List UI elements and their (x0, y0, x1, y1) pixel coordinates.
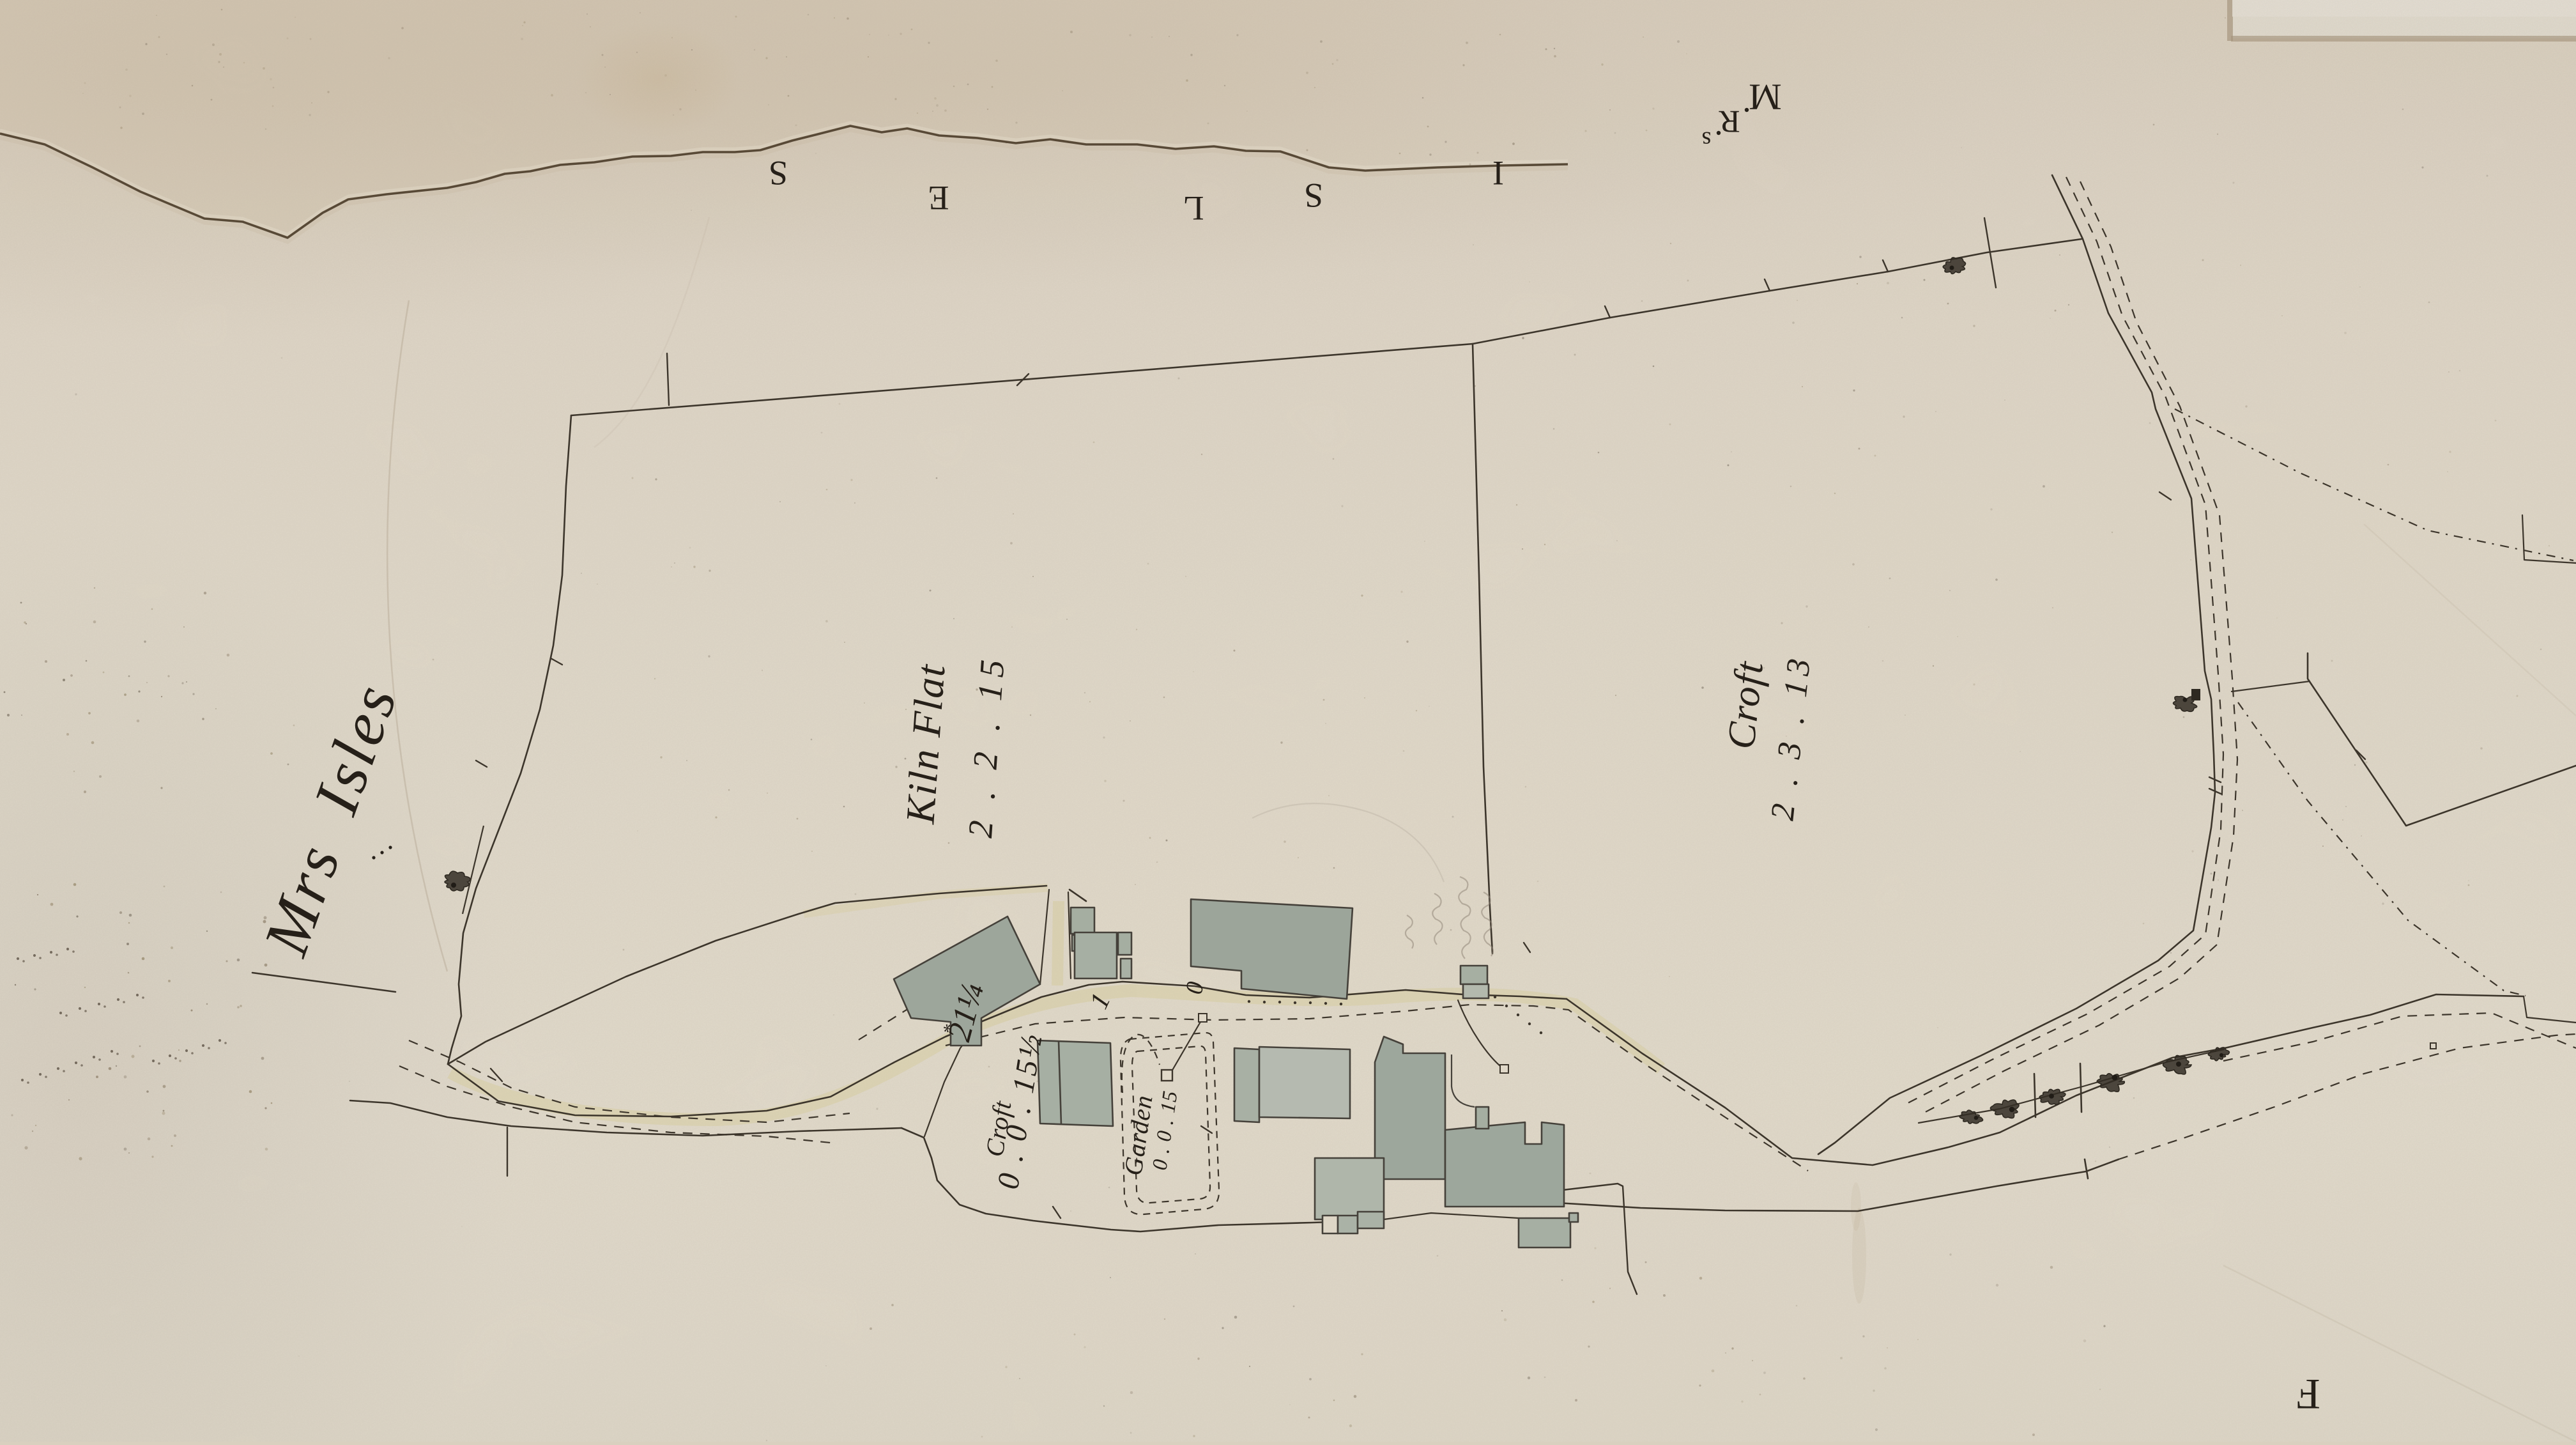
svg-text:M: M (1749, 77, 1782, 118)
svg-text:S: S (1304, 176, 1323, 215)
svg-text:S: S (769, 154, 788, 192)
svg-text:L: L (1183, 189, 1204, 228)
svg-text:I: I (1492, 154, 1504, 192)
svg-text:Croft: Croft (1719, 658, 1772, 751)
svg-text:F: F (2296, 1370, 2320, 1419)
svg-text:R: R (1719, 104, 1740, 140)
svg-text:E: E (928, 179, 949, 217)
svg-text:s: s (1702, 127, 1712, 153)
